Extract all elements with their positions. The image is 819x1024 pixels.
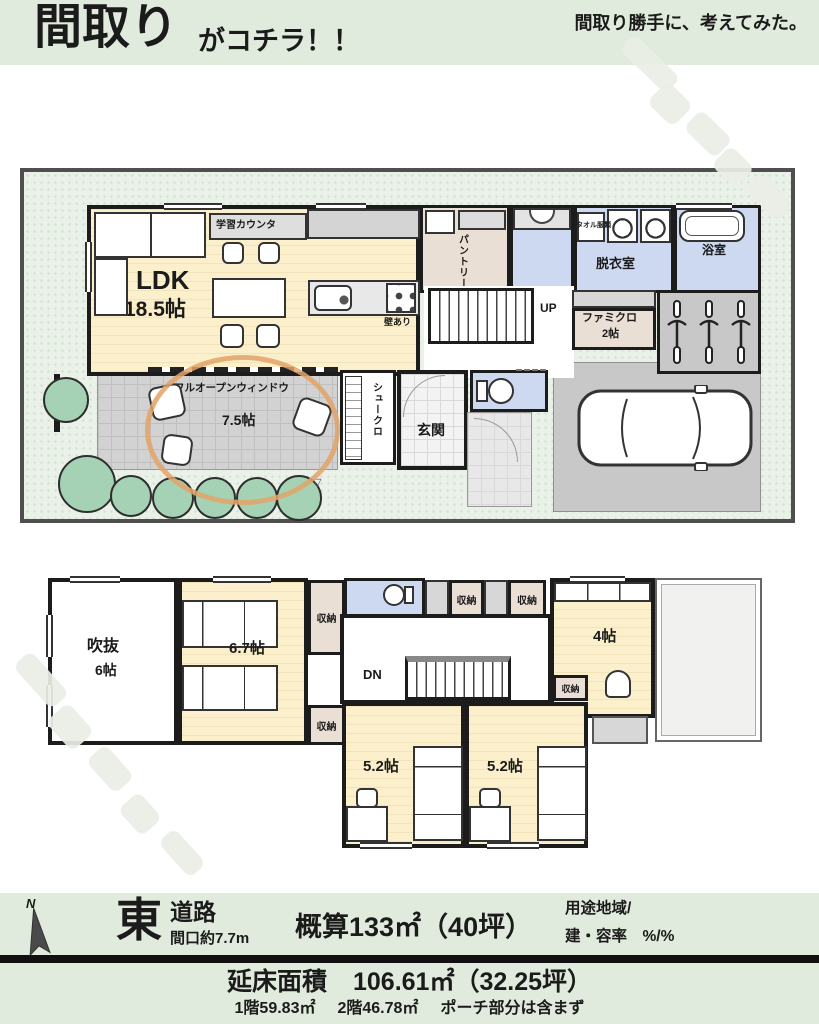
dining-table — [212, 278, 286, 318]
ldk-name: LDK — [136, 266, 189, 296]
floor-areas-row: 1階59.83㎡ 2階46.78㎡ ポーチ部分は含まず — [0, 1000, 819, 1018]
entrance-label: 玄関 — [417, 422, 445, 438]
road-label: 道路 — [170, 899, 216, 925]
shoe-closet-label: シュークロ — [370, 382, 382, 460]
window — [70, 576, 120, 583]
shoe-shelf — [345, 376, 362, 460]
floorplan-page: 間取り がコチラ！！ 間取り勝手に、考えてみた。 — [0, 0, 819, 1024]
window — [213, 576, 271, 583]
bicycle-icon — [666, 299, 688, 367]
storage-label: 収納 — [457, 592, 477, 607]
bathtub-inner — [685, 216, 739, 236]
bicycle-parking — [657, 290, 761, 374]
void-size: 6帖 — [95, 662, 117, 678]
desk — [469, 806, 511, 842]
desk-chair — [356, 788, 378, 808]
window — [487, 842, 539, 849]
void-name: 吹抜 — [87, 638, 119, 656]
zoning-label: 用途地域/ — [565, 900, 631, 918]
stairs-up — [428, 288, 534, 344]
stairs-down-label: DN — [363, 668, 382, 683]
watermark-shape — [647, 81, 694, 128]
kitchen-sink — [314, 285, 352, 311]
desk-chair — [605, 670, 631, 698]
pantry-shelf — [458, 210, 506, 230]
toilet-bowl — [383, 584, 405, 606]
ldk-size: 18.5帖 — [124, 298, 186, 322]
window — [570, 576, 625, 583]
tree — [58, 455, 116, 513]
bed — [413, 746, 463, 841]
ratio-label: 建・容率 %/% — [565, 928, 674, 946]
window — [316, 203, 366, 210]
desk — [346, 806, 388, 842]
bed — [537, 746, 587, 841]
sofa — [94, 212, 206, 258]
stairs-down — [405, 656, 511, 700]
bicycle-icon — [730, 299, 752, 367]
bicycle-icon — [698, 299, 720, 367]
compass-arrow — [17, 904, 58, 960]
washing-machine — [640, 209, 671, 243]
watermark-shape — [683, 109, 733, 158]
family-closet-size: 2帖 — [602, 328, 619, 341]
storage-closet: 収納 — [308, 705, 345, 745]
toilet-bowl — [488, 378, 514, 404]
bedroom-a-size: 5.2帖 — [363, 758, 399, 775]
floor1-plan: フルオープンウィンドウ 7.5帖 LDK 18.5帖 学習カウンタ 壁あり パン… — [20, 168, 795, 523]
pantry-label: パントリー — [456, 234, 468, 290]
window — [46, 685, 53, 727]
total-area-label: 延床面積 — [227, 968, 327, 997]
toilet-tank — [404, 586, 414, 604]
desk-chair — [479, 788, 501, 808]
bush — [110, 475, 152, 517]
storage-label: 収納 — [317, 718, 337, 733]
floor2-area: 2階46.78㎡ — [337, 1000, 418, 1018]
storage-closet: 収納 — [553, 675, 588, 701]
bedroom-main-size: 6.7帖 — [229, 640, 265, 657]
storage-closet: 収納 — [449, 580, 484, 618]
annotation-circle — [145, 355, 340, 505]
bath-label: 浴室 — [702, 244, 726, 258]
counter-chair — [222, 242, 244, 264]
dressing-label: 脱衣室 — [596, 257, 635, 272]
balcony — [655, 578, 762, 742]
dining-chair — [220, 324, 244, 348]
window — [676, 203, 732, 210]
closet — [554, 582, 651, 602]
towel-label: タオル服類 — [576, 222, 611, 230]
window — [360, 842, 412, 849]
bed — [182, 665, 278, 711]
porch-strip — [572, 290, 656, 308]
porch-note: ポーチ部分は含まず — [440, 1000, 584, 1018]
window — [46, 615, 53, 657]
divider-line — [0, 955, 819, 963]
area-estimate: 概算133㎡（40坪） — [295, 912, 532, 943]
kitchen-cabinets — [307, 209, 420, 239]
dining-chair — [256, 324, 280, 348]
kitchen-stove — [386, 283, 416, 313]
total-area-row: 延床面積 106.61㎡（32.25坪） — [0, 968, 819, 997]
storage-closet: 収納 — [508, 580, 546, 618]
balcony-step — [592, 716, 648, 744]
stairs-up-label: UP — [540, 302, 557, 316]
family-closet-label: ファミクロ — [582, 312, 637, 325]
bedroom-b-size: 5.2帖 — [487, 758, 523, 775]
page-title: 間取り — [34, 0, 178, 55]
car-icon — [575, 385, 755, 471]
study-counter-label: 学習カウンタ — [216, 220, 276, 232]
counter-chair — [258, 242, 280, 264]
door-opening — [516, 368, 546, 371]
storage-label: 収納 — [561, 682, 579, 695]
washing-machine — [607, 209, 638, 243]
window — [85, 242, 92, 292]
total-area-value: 106.61㎡（32.25坪） — [353, 968, 592, 997]
road-direction: 東 — [116, 894, 162, 947]
floor2-plan: 吹抜 6帖 6.7帖 収納 収納 収納 収納 DN 4帖 — [45, 570, 765, 860]
wall-note: 壁あり — [384, 317, 411, 327]
sofa-chaise — [94, 258, 128, 316]
window — [164, 203, 222, 210]
bathtub — [679, 210, 745, 242]
room4-size: 4帖 — [593, 628, 616, 645]
storage-label: 収納 — [317, 610, 337, 625]
refrigerator — [425, 210, 455, 234]
counter-top — [484, 580, 508, 618]
toilet-tank — [476, 380, 488, 402]
counter-top — [425, 580, 449, 618]
page-title-sub: がコチラ！！ — [198, 26, 360, 57]
floor1-area: 1階59.83㎡ — [235, 1000, 316, 1018]
storage-label: 収納 — [517, 592, 537, 607]
tree — [43, 377, 89, 423]
frontage-label: 間口約7.7m — [170, 930, 249, 947]
header-tagline: 間取り勝手に、考えてみた。 — [574, 13, 807, 34]
